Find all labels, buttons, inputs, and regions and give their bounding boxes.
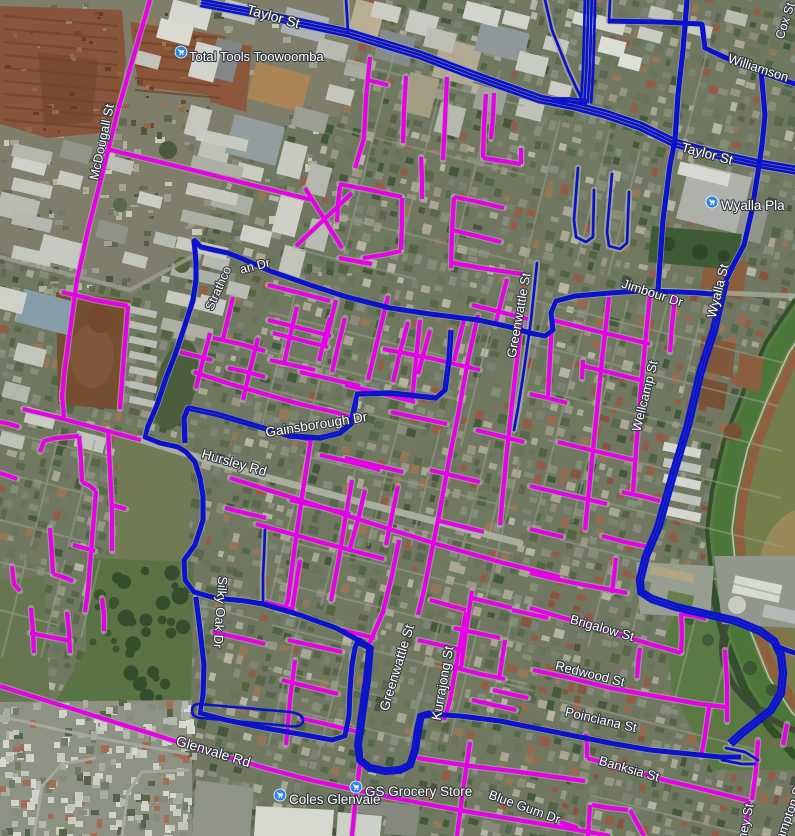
svg-text:Total Tools Toowoomba: Total Tools Toowoomba	[189, 49, 324, 64]
svg-text:GS Grocery Store: GS Grocery Store	[365, 784, 472, 799]
svg-text:Wyalla Pla: Wyalla Pla	[721, 198, 785, 213]
